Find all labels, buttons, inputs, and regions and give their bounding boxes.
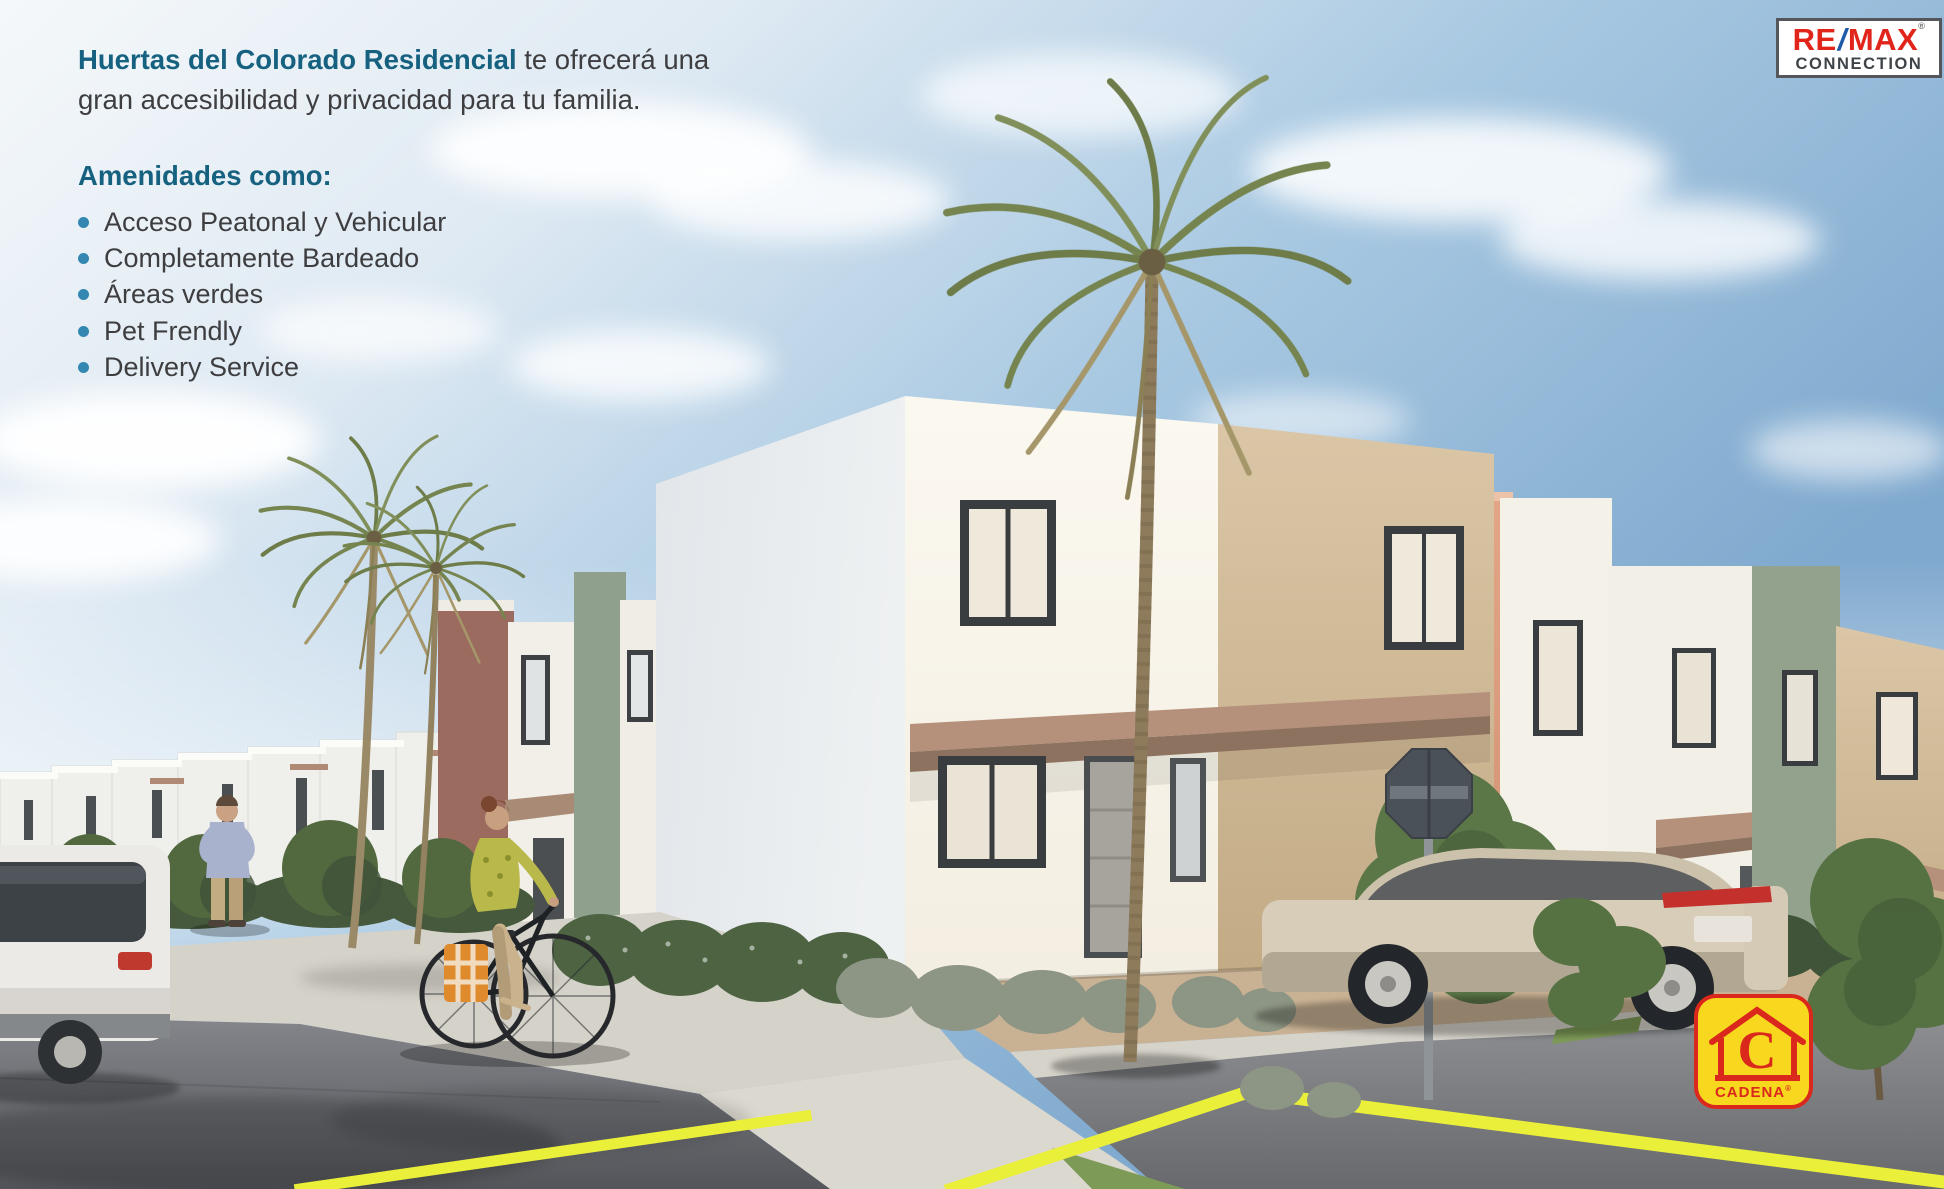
headline-brand: Huertas del Colorado Residencial	[78, 44, 517, 75]
cadena-logo: C CADENA®	[1694, 994, 1813, 1109]
list-item: Pet Frendly	[78, 313, 738, 349]
headline: Huertas del Colorado Residencial te ofre…	[78, 40, 738, 120]
list-item: Delivery Service	[78, 349, 738, 385]
bullet-icon	[78, 217, 89, 228]
amenities-list: Acceso Peatonal y Vehicular Completament…	[78, 204, 738, 386]
cadena-house-icon: C	[1704, 1002, 1811, 1086]
list-item: Áreas verdes	[78, 276, 738, 312]
list-item: Acceso Peatonal y Vehicular	[78, 204, 738, 240]
remax-connection-logo: RE/MAX® CONNECTION	[1776, 18, 1942, 78]
bullet-icon	[78, 253, 89, 264]
bullet-icon	[78, 326, 89, 337]
bullet-icon	[78, 289, 89, 300]
flyer-canvas: Huertas del Colorado Residencial te ofre…	[0, 0, 1944, 1189]
remax-wordmark: RE/MAX®	[1785, 24, 1933, 55]
remax-connection-label: CONNECTION	[1785, 56, 1933, 73]
bullet-icon	[78, 362, 89, 373]
amenities-title: Amenidades como:	[78, 156, 738, 196]
cadena-label: CADENA®	[1715, 1085, 1792, 1100]
marketing-copy: Huertas del Colorado Residencial te ofre…	[78, 40, 738, 386]
checkered-bag	[444, 944, 488, 1002]
cadena-letter: C	[1738, 1020, 1777, 1080]
list-item: Completamente Bardeado	[78, 240, 738, 276]
